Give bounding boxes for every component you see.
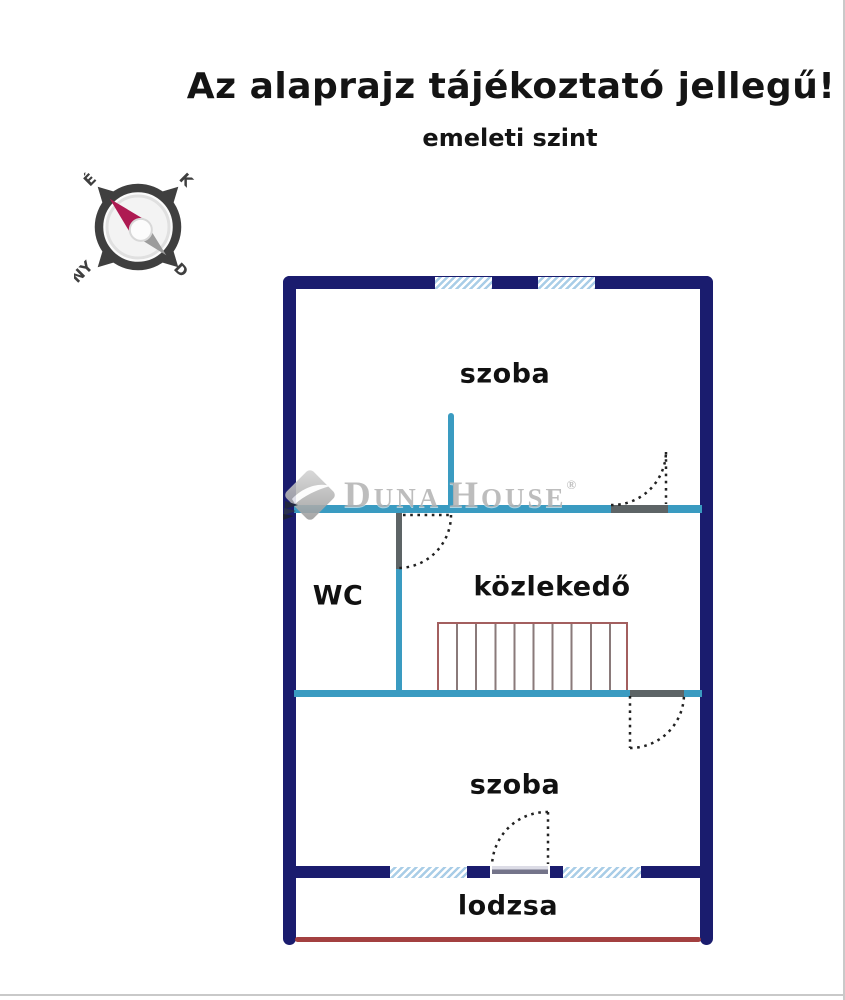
compass-label-east: K (176, 170, 198, 192)
disclaimer-title: Az alaprajz tájékoztató jellegű! (187, 66, 835, 107)
floorplan-page: Az alaprajz tájékoztató jellegű! emeleti… (0, 0, 845, 1000)
door-swing-room-top (611, 452, 666, 505)
logo-letter: H (449, 475, 481, 516)
room-label-wc: WC (313, 581, 364, 612)
room-label-kozlekedo: közlekedő (474, 572, 631, 603)
logo-letter: D (344, 475, 374, 516)
room-label-lodzsa: lodzsa (458, 891, 558, 922)
room-label-szoba-top: szoba (460, 359, 550, 390)
logo-letters: UNA (374, 483, 442, 513)
compass-label-west: NY (74, 257, 97, 287)
logo-letters: OUSE (481, 483, 567, 513)
dunahouse-logo-text: DUNAHOUSE® (344, 474, 576, 517)
dunahouse-watermark: DUNAHOUSE® (280, 464, 576, 526)
floor-plan: szoba WC közlekedő szoba lodzsa (283, 276, 713, 945)
compass-rose: É K NY D (74, 163, 202, 291)
dunahouse-logo-icon (280, 464, 340, 526)
compass-label-north: É (79, 169, 100, 190)
registered-mark: ® (567, 477, 577, 492)
door-swing-hallway (630, 694, 684, 748)
door-swing-loggia (492, 812, 548, 866)
photo-edge-bottom (0, 994, 845, 996)
room-label-szoba-bottom: szoba (470, 770, 560, 801)
floor-level-subtitle: emeleti szint (422, 124, 597, 152)
